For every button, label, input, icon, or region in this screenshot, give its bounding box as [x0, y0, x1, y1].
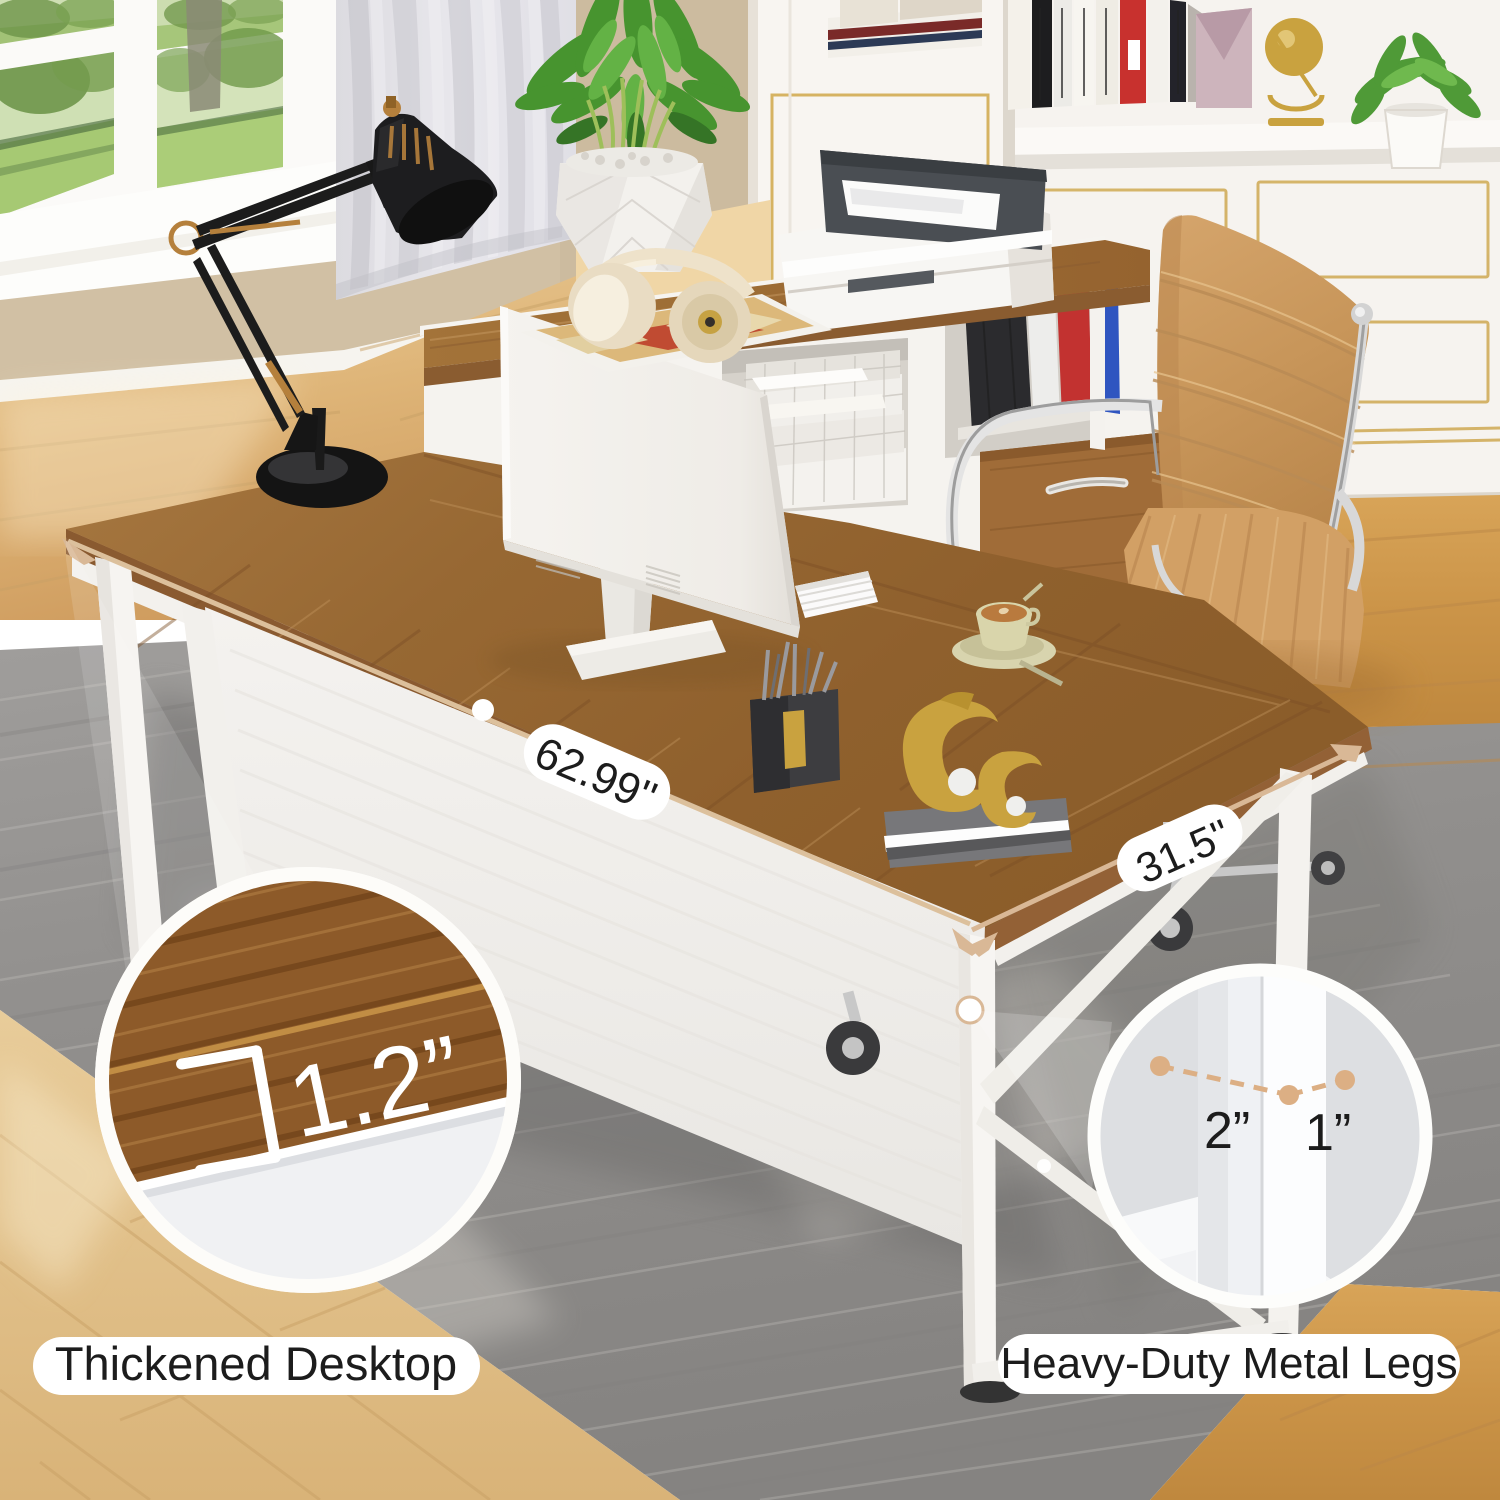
svg-text:1”: 1”: [1305, 1104, 1351, 1162]
svg-text:Heavy-Duty Metal Legs: Heavy-Duty Metal Legs: [1000, 1339, 1457, 1388]
svg-text:Thickened Desktop: Thickened Desktop: [55, 1337, 457, 1390]
svg-text:2”: 2”: [1204, 1102, 1250, 1160]
